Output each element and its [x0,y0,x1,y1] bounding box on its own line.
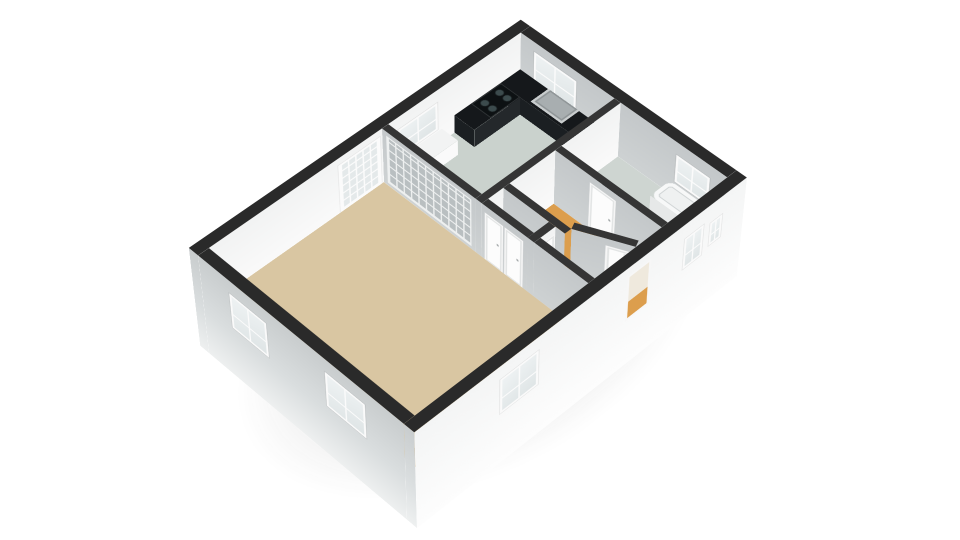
floorplan-viewport[interactable] [0,0,960,540]
bathroom-window-front [682,224,704,269]
corner-window-small [708,214,722,246]
front-door [625,258,652,321]
floorplan-scene [0,0,960,540]
